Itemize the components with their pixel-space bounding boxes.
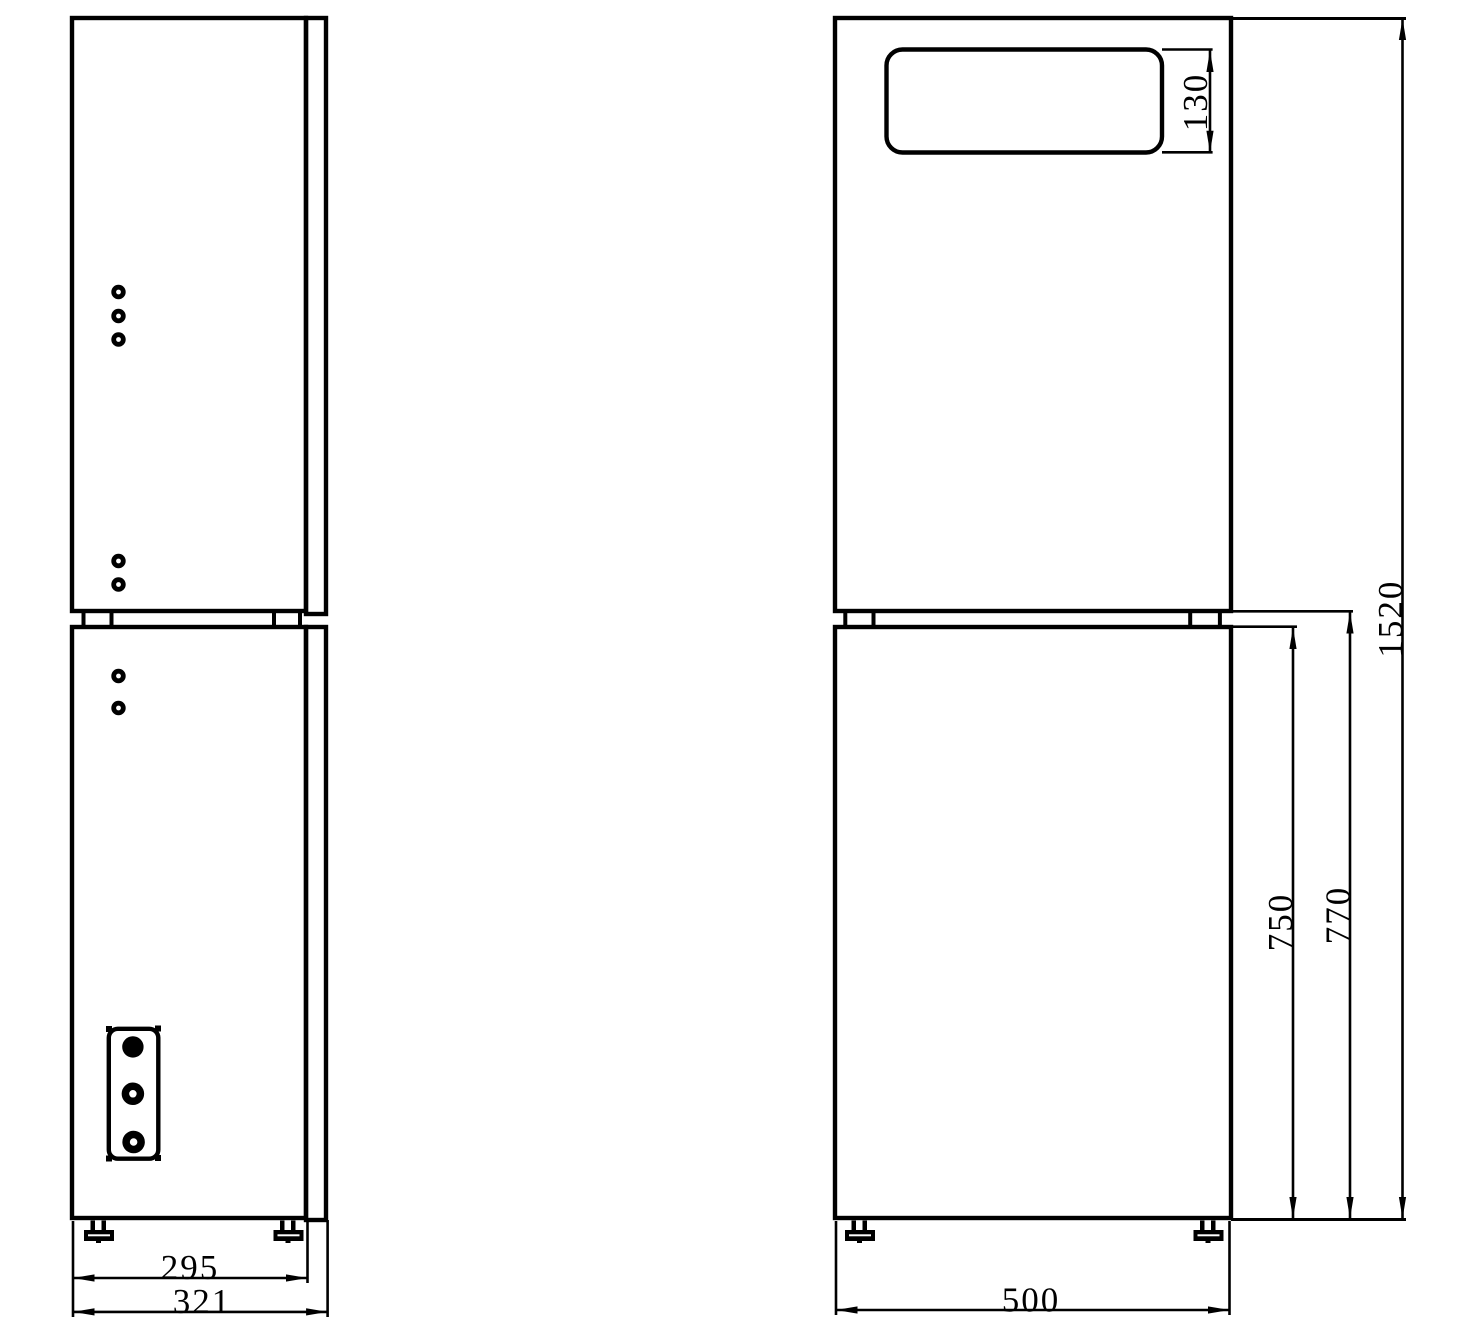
svg-text:130: 130 — [1176, 73, 1215, 132]
svg-text:770: 770 — [1319, 886, 1358, 945]
svg-text:750: 750 — [1261, 893, 1300, 952]
svg-text:500: 500 — [1002, 1281, 1061, 1320]
svg-text:1520: 1520 — [1371, 580, 1410, 658]
svg-text:321: 321 — [173, 1282, 232, 1321]
